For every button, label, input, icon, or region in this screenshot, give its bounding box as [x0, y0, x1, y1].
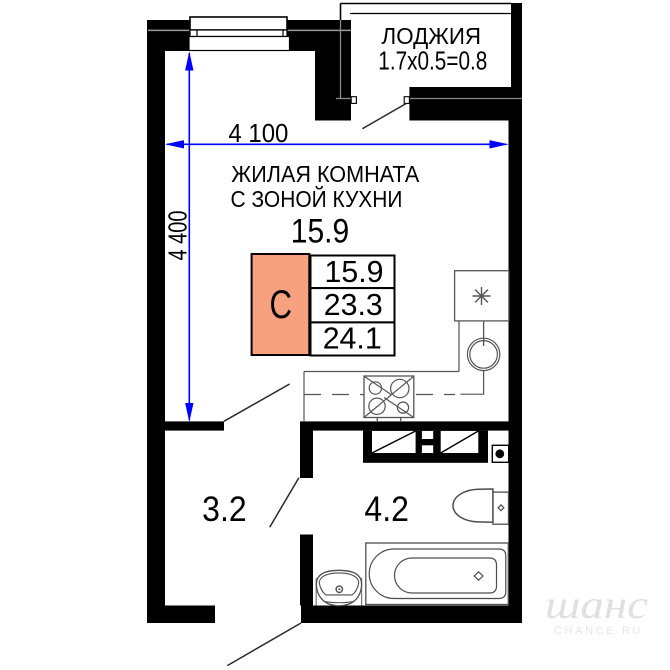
- svg-text:15.9: 15.9: [325, 255, 384, 289]
- svg-text:шанс: шанс: [545, 582, 648, 627]
- svg-text:ЖИЛАЯ КОМНАТА: ЖИЛАЯ КОМНАТА: [231, 161, 419, 187]
- svg-text:4.2: 4.2: [364, 490, 409, 529]
- svg-text:15.9: 15.9: [291, 213, 350, 251]
- svg-text:24.1: 24.1: [323, 322, 382, 356]
- svg-text:С ЗОНОЙ КУХНИ: С ЗОНОЙ КУХНИ: [231, 185, 403, 212]
- svg-text:CHANCE.RU: CHANCE.RU: [554, 625, 643, 637]
- svg-text:1.7х0.5=0.8: 1.7х0.5=0.8: [378, 46, 487, 76]
- svg-text:4 400: 4 400: [162, 211, 192, 261]
- svg-text:С: С: [270, 283, 293, 327]
- svg-text:3.2: 3.2: [202, 490, 247, 529]
- svg-text:23.3: 23.3: [324, 288, 383, 322]
